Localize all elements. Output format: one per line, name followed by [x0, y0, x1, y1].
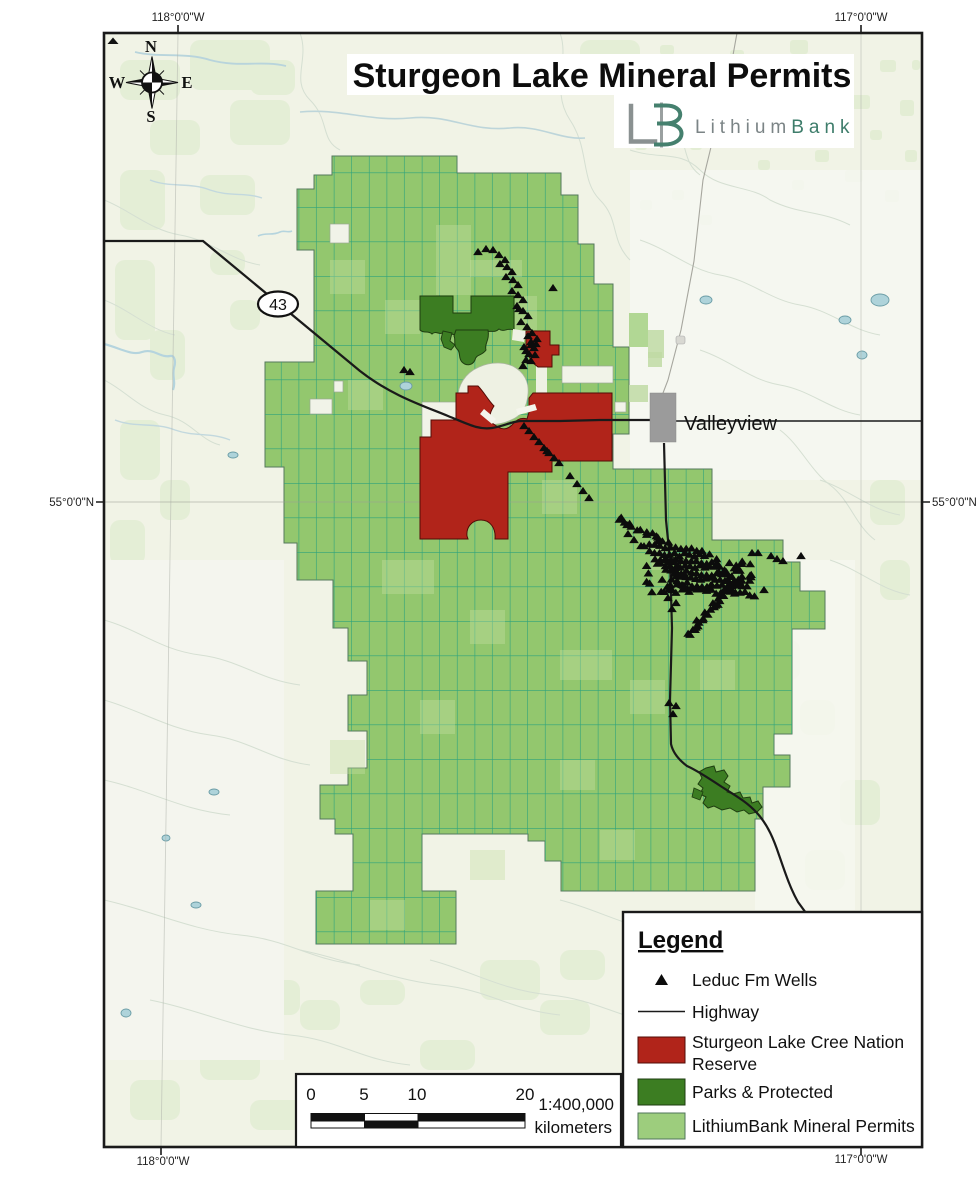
svg-text:E: E: [181, 73, 192, 92]
svg-text:Sturgeon Lake Mineral Permits: Sturgeon Lake Mineral Permits: [353, 57, 852, 95]
svg-text:20: 20: [516, 1085, 535, 1104]
svg-text:55°0'0"N: 55°0'0"N: [932, 497, 977, 509]
svg-text:118°0'0"W: 118°0'0"W: [152, 12, 205, 24]
svg-text:Sturgeon Lake Cree Nation: Sturgeon Lake Cree Nation: [692, 1032, 904, 1052]
svg-text:117°0'0"W: 117°0'0"W: [835, 1154, 888, 1166]
svg-text:N: N: [145, 37, 157, 56]
svg-text:S: S: [146, 107, 155, 126]
svg-text:55°0'0"N: 55°0'0"N: [49, 497, 94, 509]
svg-text:118°0'0"W: 118°0'0"W: [137, 1156, 190, 1168]
svg-text:5: 5: [359, 1085, 368, 1104]
svg-text:Parks & Protected: Parks & Protected: [692, 1082, 833, 1102]
svg-text:Reserve: Reserve: [692, 1054, 757, 1074]
svg-text:0: 0: [306, 1085, 315, 1104]
svg-text:Legend: Legend: [638, 927, 723, 954]
svg-text:Leduc Fm Wells: Leduc Fm Wells: [692, 970, 817, 990]
svg-text:Highway: Highway: [692, 1002, 759, 1022]
svg-text:1:400,000: 1:400,000: [538, 1095, 614, 1114]
svg-text:Valleyview: Valleyview: [684, 413, 778, 435]
svg-text:LithiumBank: LithiumBank: [695, 117, 855, 138]
svg-text:W: W: [109, 73, 126, 92]
svg-text:LithiumBank Mineral Permits: LithiumBank Mineral Permits: [692, 1116, 915, 1136]
svg-text:117°0'0"W: 117°0'0"W: [835, 12, 888, 24]
svg-text:43: 43: [269, 297, 287, 314]
svg-text:10: 10: [408, 1085, 427, 1104]
svg-text:kilometers: kilometers: [535, 1118, 612, 1137]
